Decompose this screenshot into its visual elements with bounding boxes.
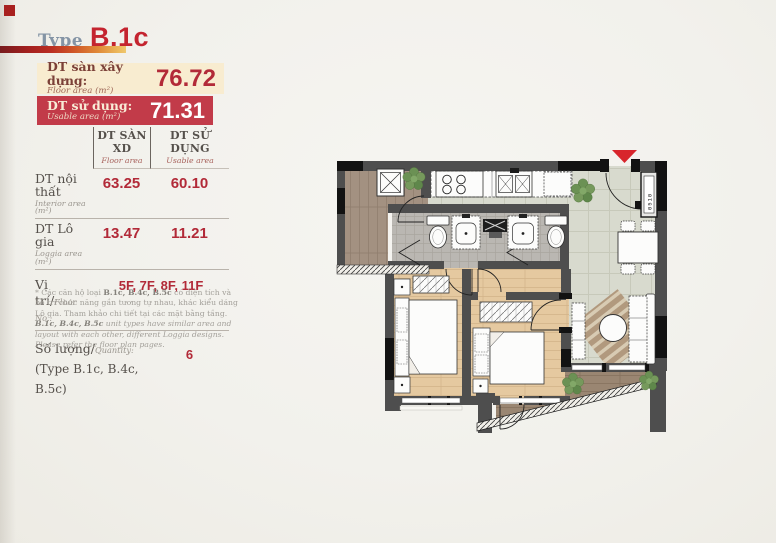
- fridge-icon: [544, 172, 571, 196]
- meter-box: 0510: [641, 172, 657, 217]
- loggia-usable-value: 11.21: [150, 219, 229, 269]
- faucet-icon: [510, 168, 519, 173]
- toilet-icon: [545, 216, 567, 225]
- coffee-table: [600, 315, 627, 342]
- corner-accent-square: [4, 5, 15, 16]
- floor-area-label-vi: DT sàn xây dựng:: [47, 60, 156, 87]
- title-underline-gradient: [0, 46, 126, 53]
- tv-console: [572, 303, 585, 359]
- wardrobe: [480, 302, 532, 322]
- meter-label: 0510: [647, 193, 654, 210]
- interior-floor-value: 63.25: [93, 169, 150, 219]
- bed: [490, 332, 544, 384]
- usable-area-label-en: Usable area (m²): [47, 113, 132, 122]
- area-table: DT SÀN XD Floor area DT SỬ DỤNG Usable a…: [35, 127, 229, 401]
- bed: [409, 300, 457, 374]
- usable-area-box: DT sử dụng: Usable area (m²) 71.31: [37, 96, 213, 125]
- floor-area-box: DT sàn xây dựng: Floor area (m²) 76.72: [37, 63, 224, 94]
- chair: [641, 264, 655, 274]
- dining-table: [618, 232, 658, 263]
- footnote: * Các căn hộ loại B.1c, B.4c, B.5c có di…: [35, 288, 238, 350]
- quantity-types: (Type B.1c, B.4c, B.5c): [35, 362, 138, 396]
- usable-area-value: 71.31: [150, 98, 213, 124]
- loggia-vent-strip: [337, 265, 429, 274]
- chair: [621, 264, 635, 274]
- floor-area-value: 76.72: [156, 65, 224, 93]
- washing-machine-icon: [377, 169, 404, 196]
- interior-usable-value: 60.10: [150, 169, 229, 219]
- chair: [621, 221, 635, 231]
- col-floor-subheader: Floor area: [94, 155, 150, 165]
- chair: [641, 221, 655, 231]
- col-usable-subheader: Usable area: [151, 155, 229, 165]
- usable-area-label-vi: DT sử dụng:: [47, 99, 132, 113]
- col-usable-header: DT SỬ DỤNG: [151, 127, 229, 155]
- table-row-loggia: DT Lô gia Loggia area (m²) 13.47 11.21: [35, 219, 229, 269]
- area-table-header: DT SÀN XD Floor area DT SỬ DỤNG Usable a…: [35, 127, 229, 169]
- col-floor-header: DT SÀN XD: [94, 127, 150, 155]
- kitchen: [431, 168, 572, 197]
- floor-plan: 0510: [330, 142, 682, 442]
- wardrobe: [413, 276, 449, 293]
- loggia-floor-value: 13.47: [93, 219, 150, 269]
- table-row-interior: DT nội thất Interior area (m²) 63.25 60.…: [35, 169, 229, 219]
- page-edge-shadow: [0, 0, 16, 543]
- floorplan-page: { "header": { "title_prefix": "Type", "t…: [0, 0, 776, 543]
- toilet-icon: [427, 216, 449, 225]
